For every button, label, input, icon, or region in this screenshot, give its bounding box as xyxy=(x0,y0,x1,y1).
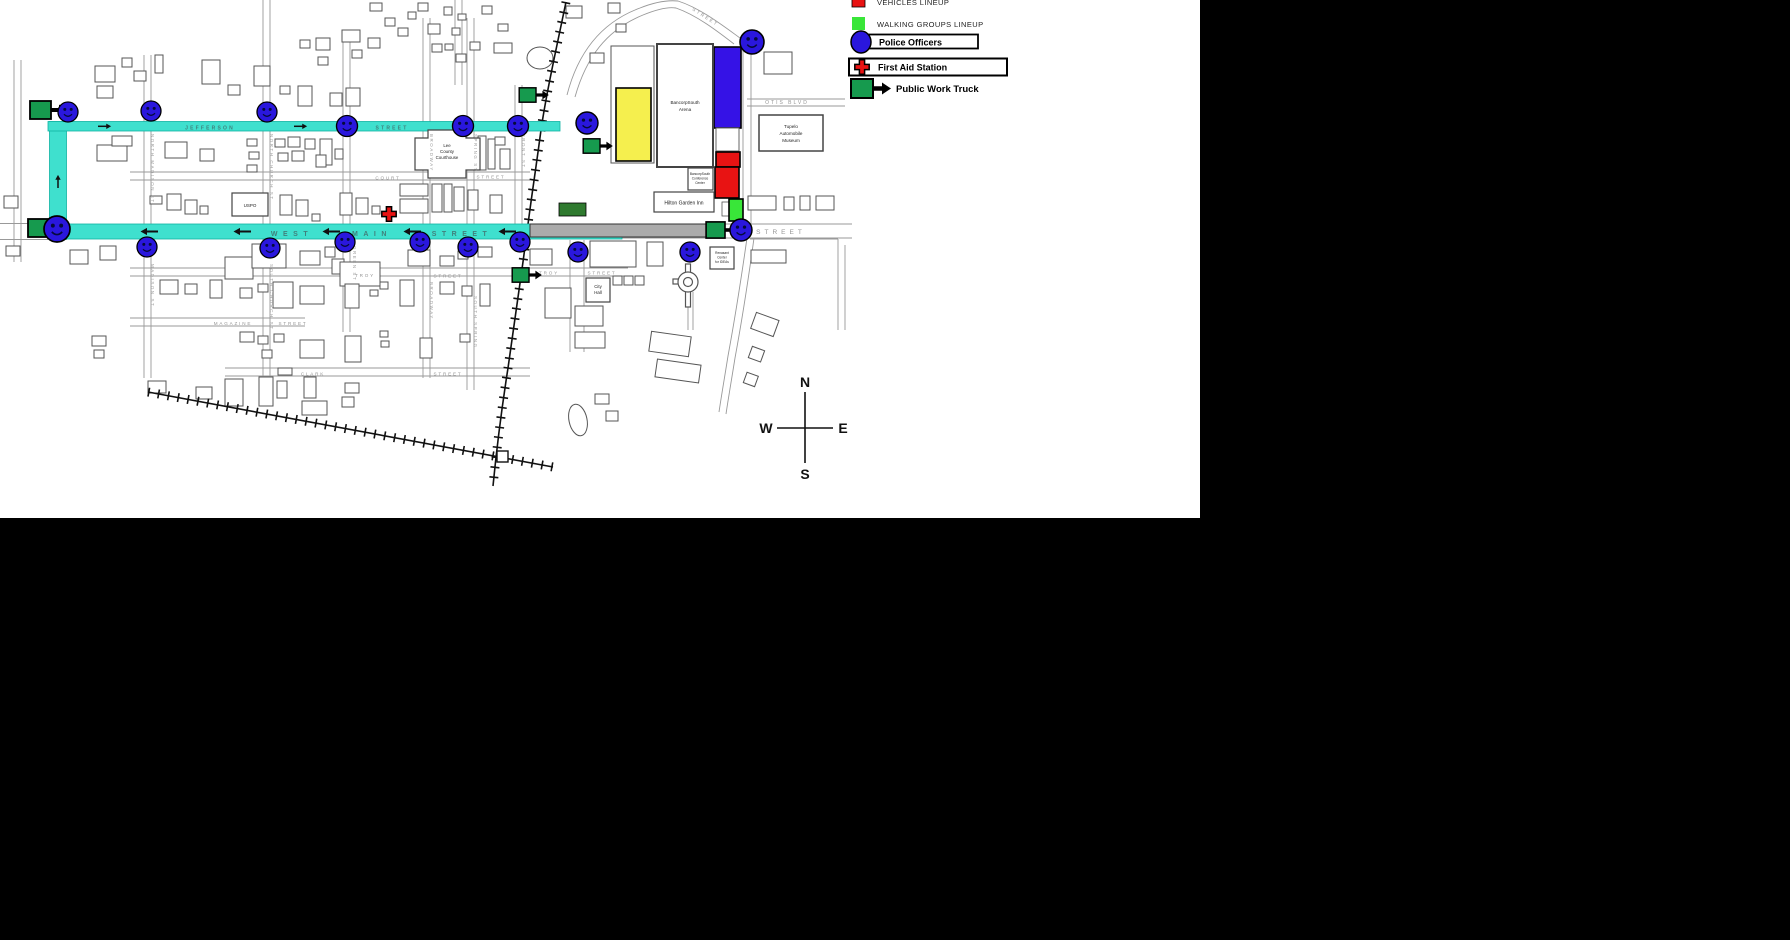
police-marker xyxy=(141,101,161,121)
west-label: WEST xyxy=(271,231,313,238)
svg-text:BROADWAY: BROADWAY xyxy=(429,134,434,172)
lineup-green xyxy=(729,199,743,221)
svg-text:Tupelo: Tupelo xyxy=(784,124,798,129)
police-marker xyxy=(740,30,764,54)
construction-bar xyxy=(530,224,706,237)
compass-e: E xyxy=(838,420,847,436)
first-aid-label: First Aid Station xyxy=(878,63,947,73)
svg-text:STREET: STREET xyxy=(434,372,463,377)
police-marker xyxy=(458,237,478,257)
vehicles-lineup-label: VEHICLES LINEUP xyxy=(877,0,949,7)
svg-text:TROY: TROY xyxy=(355,273,375,278)
svg-text:STREET: STREET xyxy=(588,271,617,276)
police-marker xyxy=(576,112,598,134)
svg-text:County: County xyxy=(440,149,455,154)
lineup-yellow xyxy=(616,88,651,161)
svg-text:City: City xyxy=(594,284,602,289)
uspo-label: USPO xyxy=(244,203,257,208)
lineup-blue xyxy=(714,47,741,128)
svg-text:BROADWAY: BROADWAY xyxy=(429,282,434,320)
police-officer-swatch xyxy=(851,31,871,53)
svg-text:Museum: Museum xyxy=(782,138,800,143)
svg-text:Lee: Lee xyxy=(443,143,451,148)
svg-text:for IDEAs: for IDEAs xyxy=(715,260,729,264)
police-marker xyxy=(453,116,474,137)
police-marker xyxy=(510,232,530,252)
police-marker xyxy=(508,116,529,137)
svg-text:Center: Center xyxy=(717,256,728,260)
arena-building xyxy=(657,44,713,167)
svg-text:FRONT ST: FRONT ST xyxy=(521,134,526,169)
police-marker xyxy=(730,219,752,241)
svg-text:NORTH MADISON ST: NORTH MADISON ST xyxy=(150,134,155,204)
main-label: MAIN xyxy=(352,231,392,238)
svg-text:SPRING ST: SPRING ST xyxy=(473,134,478,172)
police-marker xyxy=(335,232,355,252)
svg-text:BancorpSouth: BancorpSouth xyxy=(670,100,700,105)
hilton-label: Hilton Garden Inn xyxy=(664,201,703,207)
police-marker xyxy=(568,242,588,262)
police-marker xyxy=(44,216,70,242)
svg-text:Hall: Hall xyxy=(594,290,602,295)
svg-text:STREET: STREET xyxy=(434,274,463,279)
compass-s: S xyxy=(800,466,809,482)
otis-blvd-label: OTIS BLVD xyxy=(765,100,809,106)
svg-text:CLARK: CLARK xyxy=(301,372,325,377)
svg-text:Arena: Arena xyxy=(679,107,692,112)
police-marker xyxy=(257,102,277,122)
svg-text:STREET: STREET xyxy=(477,175,506,180)
svg-text:STREET: STREET xyxy=(376,125,409,131)
main-street-label: STREET xyxy=(432,231,493,238)
svg-text:Conference: Conference xyxy=(692,177,709,181)
svg-text:TROY: TROY xyxy=(539,271,559,276)
police-marker xyxy=(680,242,700,262)
jefferson-label: JEFFERSON xyxy=(185,125,235,131)
compass-n: N xyxy=(800,374,810,390)
svg-text:MADISON ST: MADISON ST xyxy=(150,264,155,307)
walking-groups-swatch xyxy=(852,17,865,30)
parade-route-map: USPO Lee County Courthouse BancorpSouth … xyxy=(0,0,1200,518)
walking-groups-label: WALKING GROUPS LINEUP xyxy=(877,20,983,29)
svg-text:NORTH CHURCH ST: NORTH CHURCH ST xyxy=(269,134,274,201)
police-marker xyxy=(137,237,157,257)
police-marker xyxy=(337,116,358,137)
police-marker xyxy=(260,238,280,258)
police-marker xyxy=(58,102,78,122)
east-street-label: STREET xyxy=(756,229,806,236)
svg-text:BancorpSouth: BancorpSouth xyxy=(690,172,710,176)
svg-text:SOUTH CHURCH ST: SOUTH CHURCH ST xyxy=(269,264,274,330)
svg-text:STREET: STREET xyxy=(279,321,308,326)
railroad-junction xyxy=(497,451,508,462)
svg-text:COURT: COURT xyxy=(375,176,400,181)
map-sheet: USPO Lee County Courthouse BancorpSouth … xyxy=(0,0,1200,523)
public-work-truck-swatch xyxy=(851,79,873,98)
lineup-red-lower xyxy=(715,167,739,198)
svg-text:SOUTH SPRING: SOUTH SPRING xyxy=(473,296,478,349)
svg-text:GREEN ST: GREEN ST xyxy=(352,246,357,281)
compass-w: W xyxy=(759,420,773,436)
vehicles-lineup-swatch xyxy=(852,0,865,7)
svg-text:MAGAZINE: MAGAZINE xyxy=(214,321,252,326)
public-work-truck-label: Public Work Truck xyxy=(896,84,979,95)
police-officers-label: Police Officers xyxy=(879,38,942,48)
dark-green-building xyxy=(559,203,586,216)
svg-text:Automobile: Automobile xyxy=(780,131,803,136)
svg-text:Center: Center xyxy=(695,181,706,185)
police-marker xyxy=(410,232,430,252)
svg-text:Courthouse: Courthouse xyxy=(436,155,459,160)
svg-text:Renasant: Renasant xyxy=(715,251,729,255)
lineup-red-upper xyxy=(716,152,740,167)
legend-first-aid-station: First Aid Station xyxy=(849,59,1007,76)
